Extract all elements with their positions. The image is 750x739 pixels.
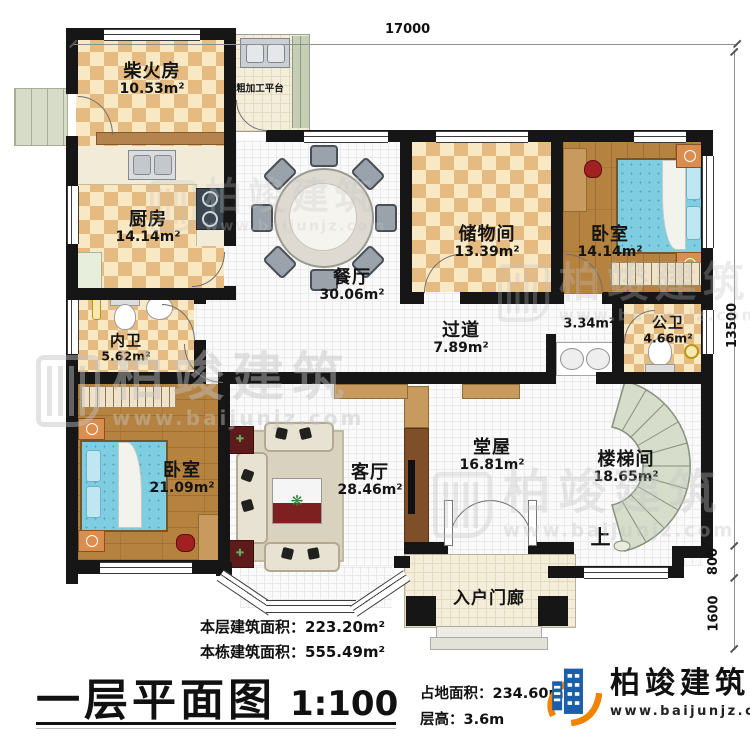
bed-pillow: [686, 206, 701, 240]
bay-window: [266, 600, 356, 613]
window: [304, 131, 388, 143]
wall: [194, 288, 206, 304]
wall: [460, 292, 564, 304]
wall: [546, 334, 556, 374]
vanity-basin: [560, 348, 584, 370]
drawing-title: 一层平面图: [36, 664, 276, 728]
dimension-top: 17000: [385, 22, 430, 37]
nightstand: [676, 144, 703, 168]
wall: [400, 142, 412, 304]
wardrobe: [610, 262, 703, 286]
dining-chair: [251, 204, 273, 232]
room-label-porch: 入户门廊: [453, 589, 525, 608]
company-logo-icon: [544, 660, 602, 728]
title-underline: [36, 722, 396, 725]
window: [702, 156, 714, 248]
platform-sink: [240, 38, 290, 68]
wall: [66, 28, 78, 94]
kitchen-sink: [128, 150, 176, 180]
console-table: [462, 384, 520, 399]
room-label-hallway: 过道7.89m²: [433, 321, 488, 357]
floor-plan-canvas: ✚ ✚ ❋: [0, 0, 750, 739]
dimension-right-main: 13500: [725, 303, 740, 348]
drawing-title-row: 一层平面图 1:100: [36, 664, 398, 728]
wall: [551, 142, 563, 304]
exterior-side-steps: [14, 88, 68, 146]
room-label-bath-public: 公卫4.66m²: [643, 315, 692, 346]
wall: [226, 130, 234, 142]
console-table: [334, 384, 408, 399]
closet-area-label: 3.34m²: [563, 318, 614, 333]
dimension-right-bottom: 1600: [707, 595, 722, 631]
room-label-platform: 粗加工平台: [236, 85, 284, 96]
nightstand: [78, 418, 105, 440]
kitchen-side-cabinet: [76, 252, 102, 290]
room-label-kitchen: 厨房14.14m²: [115, 210, 180, 246]
room-label-dining: 餐厅30.06m²: [319, 268, 384, 304]
room-label-bedroom-bl: 卧室21.09m²: [149, 461, 214, 497]
dining-chair: [310, 145, 338, 167]
room-label-firewood: 柴火房10.53m²: [119, 62, 184, 98]
company-name: 柏竣建筑: [610, 669, 750, 699]
porch-pillar: [538, 596, 568, 626]
wardrobe: [80, 386, 176, 408]
desk: [198, 514, 220, 562]
bed-pillow: [686, 166, 701, 200]
company-website: www.baijunjz.com: [610, 704, 750, 719]
dimension-tick: [730, 645, 738, 653]
floor-height-text: 层高：3.6m: [420, 708, 504, 729]
room-label-hall: 堂屋16.81m²: [459, 438, 524, 474]
sofa: [264, 542, 340, 572]
wall: [404, 542, 448, 554]
vanity-basin: [586, 348, 610, 370]
plant-icon: ❋: [291, 494, 304, 509]
wall: [218, 372, 230, 572]
wall: [602, 292, 713, 304]
floor-drain: [684, 344, 699, 359]
toilet: [114, 304, 136, 330]
desk: [563, 148, 587, 212]
bed-pillow: [86, 486, 101, 518]
company-logo: 柏竣建筑 www.baijunjz.com: [544, 660, 750, 728]
drawing-scale: 1:100: [290, 684, 398, 724]
porch-steps: [430, 637, 548, 650]
wall: [66, 372, 206, 384]
window: [67, 300, 79, 354]
window: [67, 186, 79, 244]
kitchen-bar-counter: [96, 132, 226, 145]
dimension-tick: [733, 40, 741, 48]
room-label-storage: 储物间13.39m²: [454, 225, 519, 261]
stove: [196, 188, 224, 230]
side-table: ✚: [226, 426, 254, 454]
dimension-right-mid: 800: [706, 548, 721, 575]
window: [104, 29, 200, 41]
stool: [176, 534, 195, 552]
room-label-bedroom-tr: 卧室14.14m²: [577, 225, 642, 261]
desk-chair: [584, 160, 602, 178]
dimension-line: [72, 44, 738, 45]
room-label-stairwell: 楼梯间18.65m²: [593, 450, 658, 486]
dining-chair: [375, 204, 397, 232]
window: [584, 567, 668, 579]
window: [634, 131, 686, 143]
bed-pillow: [86, 450, 101, 482]
wall: [400, 292, 424, 304]
building-area-text: 本栋建筑面积：555.49m²: [200, 641, 385, 662]
sofa-pillow: [275, 427, 288, 440]
platform-steps: [292, 36, 309, 128]
window: [436, 131, 528, 143]
wall: [394, 556, 410, 568]
dimension-line: [734, 52, 735, 650]
room-label-living: 客厅28.46m²: [337, 463, 402, 499]
door-leaf: [528, 500, 537, 546]
sofa: [236, 452, 268, 544]
tv: [408, 460, 415, 514]
room-label-bath-inner: 内卫5.62m²: [101, 333, 150, 364]
floor-area-text: 本层建筑面积：223.20m²: [200, 616, 385, 637]
window: [702, 310, 714, 354]
window: [100, 562, 192, 574]
stairs-up-label: 上: [591, 526, 612, 548]
coffee-table: ❋: [272, 478, 322, 524]
door-leaf: [444, 500, 453, 546]
porch-pillar: [406, 596, 436, 626]
wall: [66, 288, 236, 300]
title-underline-light: [36, 728, 396, 729]
dining-table-top: [289, 183, 357, 251]
sofa-pillow: [307, 547, 320, 560]
wall: [230, 372, 530, 384]
nightstand: [78, 530, 105, 552]
